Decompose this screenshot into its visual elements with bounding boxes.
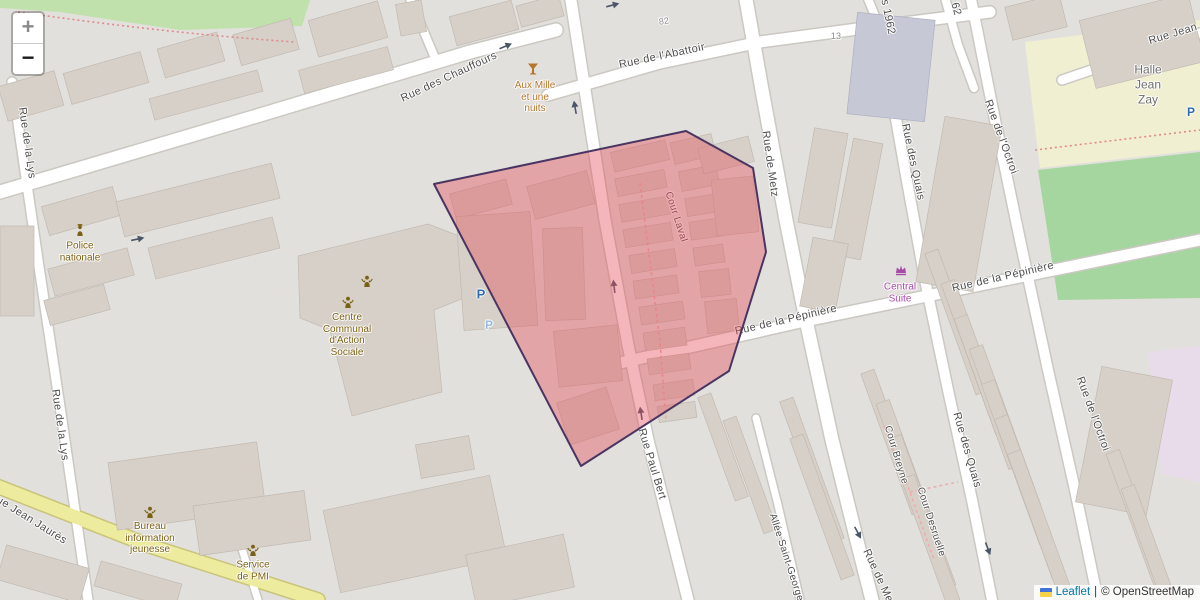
osm-copyright: © OpenStreetMap	[1101, 586, 1194, 598]
ukraine-flag-icon	[1040, 588, 1052, 597]
leaflet-link[interactable]: Leaflet	[1056, 586, 1091, 598]
leaflet-map[interactable]: Rue des ChauffoursRue de l'AbattoirRue d…	[0, 0, 1200, 600]
attribution-bar: Leaflet | © OpenStreetMap	[1034, 585, 1200, 600]
zoom-out-button[interactable]: −	[13, 44, 43, 74]
map-tiles	[0, 0, 1200, 600]
sports-pitch	[1038, 152, 1200, 300]
zoom-in-button[interactable]: +	[13, 13, 43, 44]
attribution-separator: |	[1094, 586, 1097, 598]
zoom-control: + −	[11, 11, 45, 76]
